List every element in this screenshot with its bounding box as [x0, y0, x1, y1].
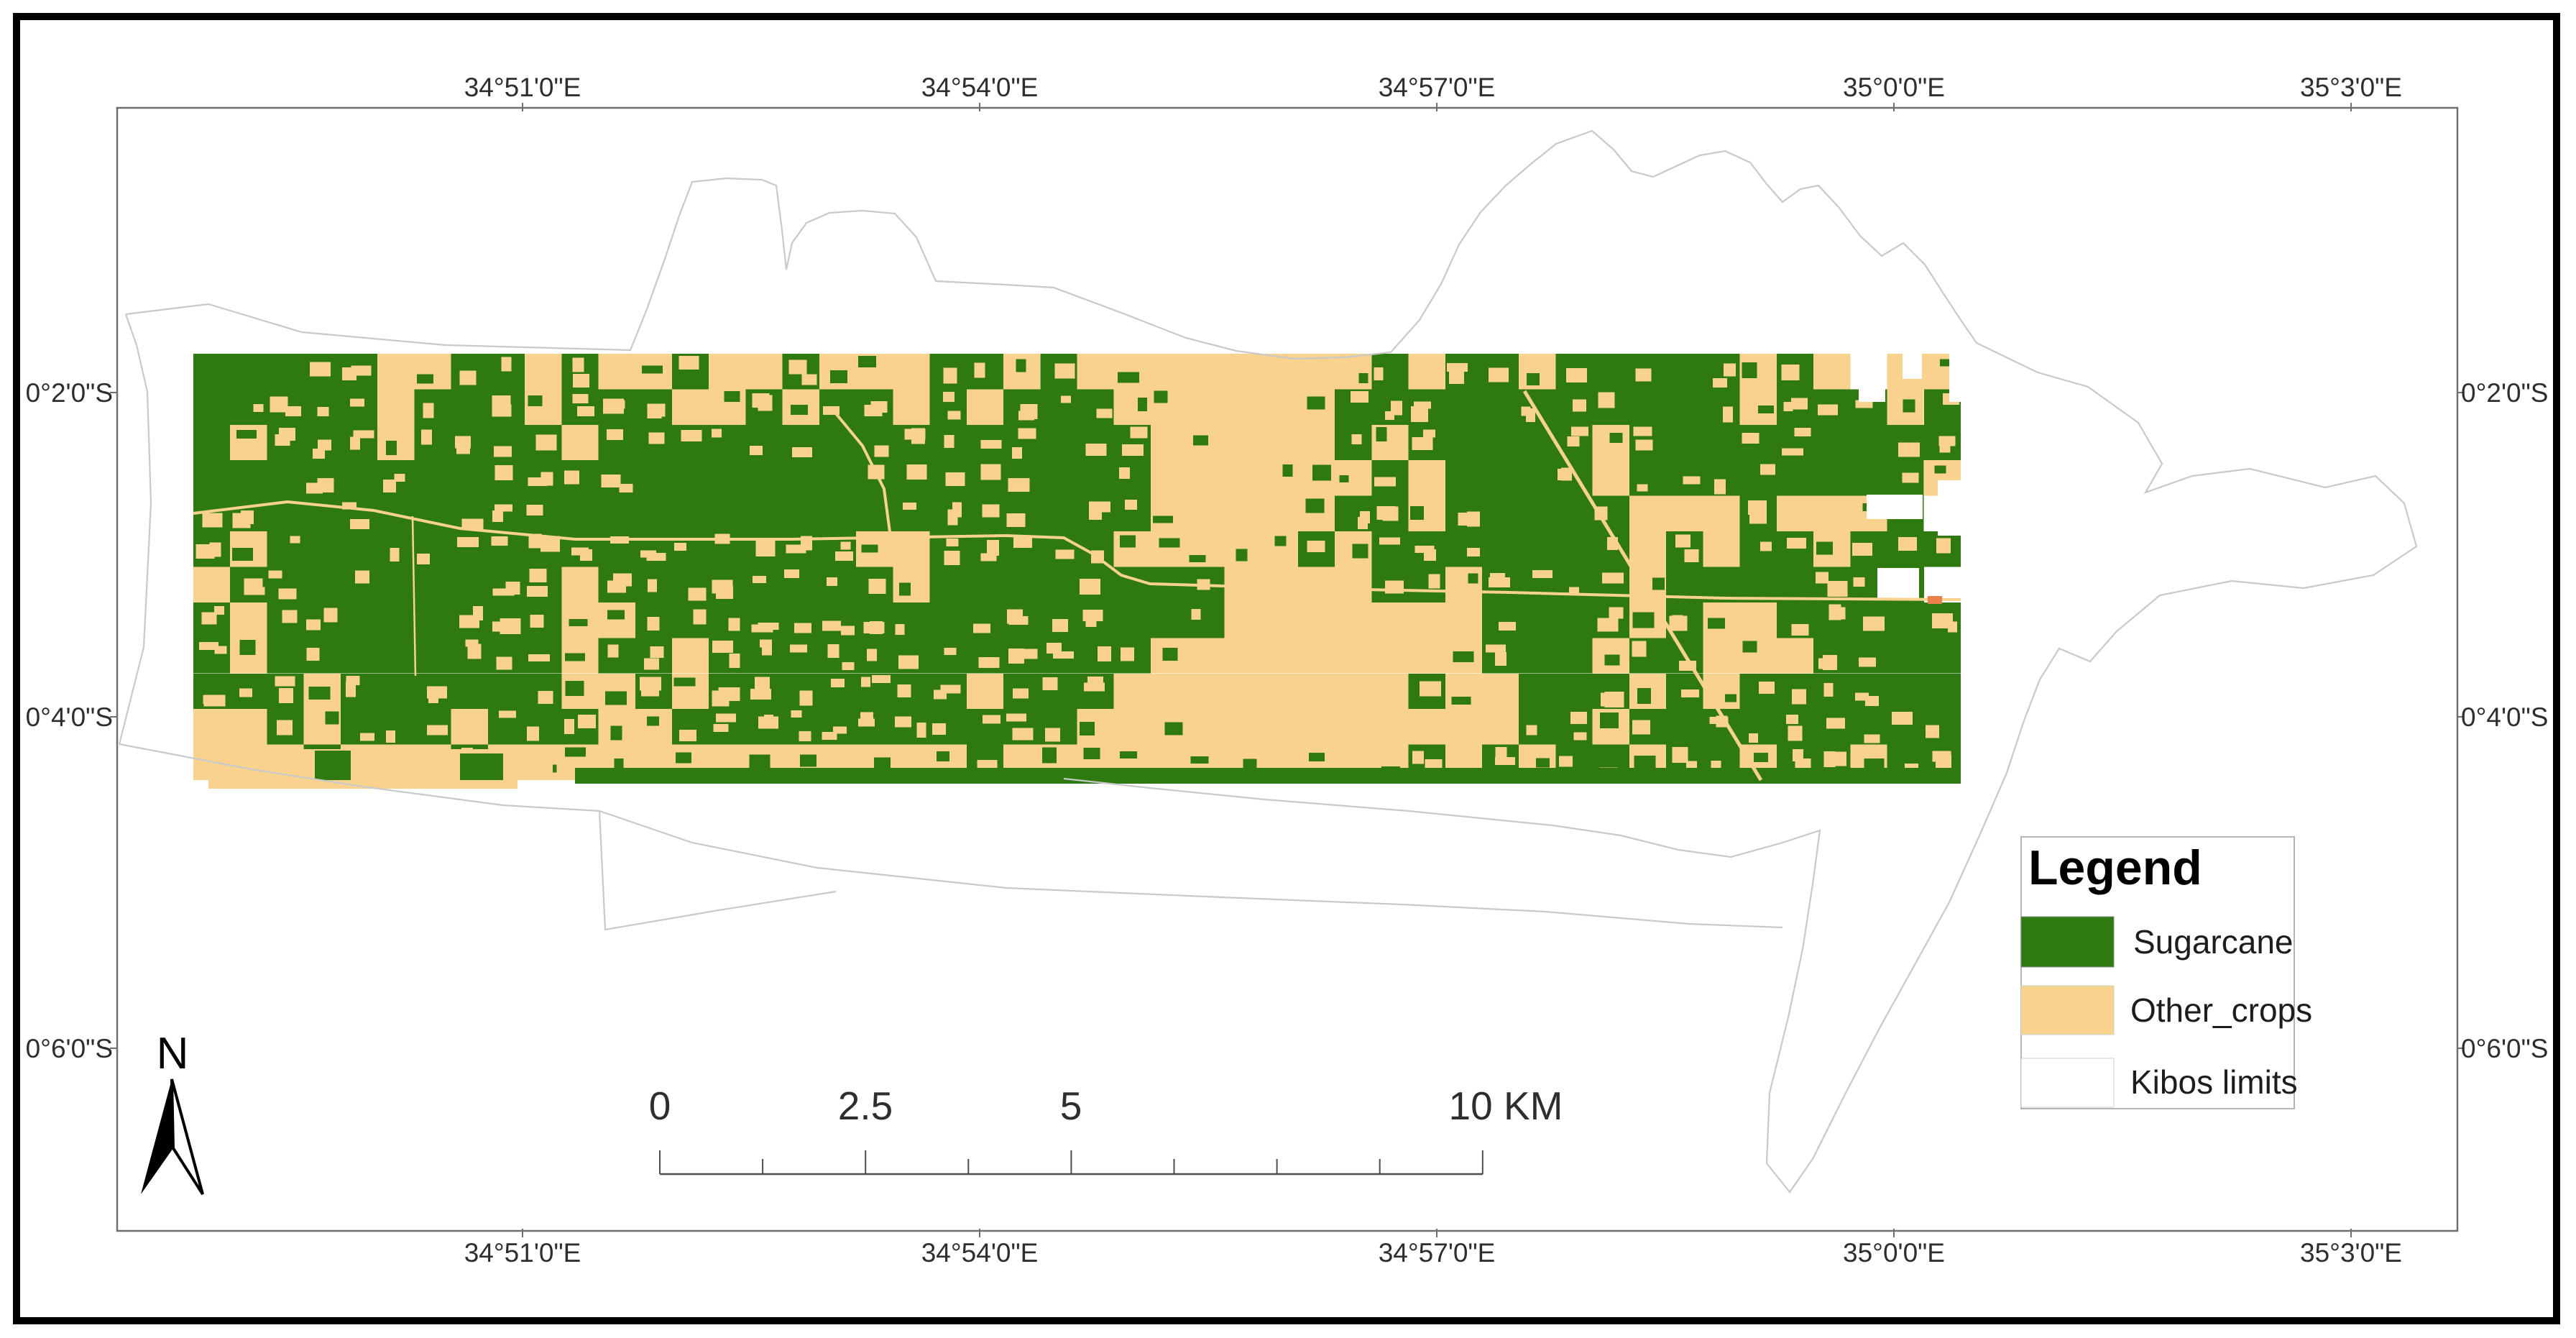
svg-text:2.5: 2.5 [838, 1083, 893, 1128]
svg-text:0°2'0"S: 0°2'0"S [26, 378, 113, 408]
svg-text:10 KM: 10 KM [1449, 1083, 1563, 1128]
svg-text:35°3'0"E: 35°3'0"E [2300, 1238, 2402, 1268]
svg-text:N: N [157, 1029, 189, 1078]
svg-text:Other_crops: Other_crops [2130, 991, 2312, 1029]
svg-text:Legend: Legend [2028, 840, 2202, 895]
svg-text:35°0'0"E: 35°0'0"E [1843, 73, 1945, 102]
svg-text:34°51'0"E: 34°51'0"E [464, 1238, 581, 1268]
svg-text:35°0'0"E: 35°0'0"E [1843, 1238, 1945, 1268]
svg-text:0°6'0"S: 0°6'0"S [26, 1034, 113, 1063]
svg-text:5: 5 [1060, 1083, 1082, 1128]
svg-text:0°4'0"S: 0°4'0"S [2461, 702, 2548, 732]
svg-text:34°57'0"E: 34°57'0"E [1379, 73, 1496, 102]
svg-text:34°54'0"E: 34°54'0"E [921, 1238, 1039, 1268]
svg-text:0°4'0"S: 0°4'0"S [26, 702, 113, 732]
svg-text:34°54'0"E: 34°54'0"E [921, 73, 1039, 102]
svg-text:35°3'0"E: 35°3'0"E [2300, 73, 2402, 102]
svg-text:Kibos limits: Kibos limits [2130, 1063, 2298, 1101]
svg-text:34°57'0"E: 34°57'0"E [1379, 1238, 1496, 1268]
svg-text:0°6'0"S: 0°6'0"S [2461, 1034, 2548, 1063]
svg-text:Sugarcane: Sugarcane [2133, 923, 2294, 961]
svg-text:0°2'0"S: 0°2'0"S [2461, 378, 2548, 408]
svg-text:34°51'0"E: 34°51'0"E [464, 73, 581, 102]
svg-text:0: 0 [649, 1083, 671, 1128]
